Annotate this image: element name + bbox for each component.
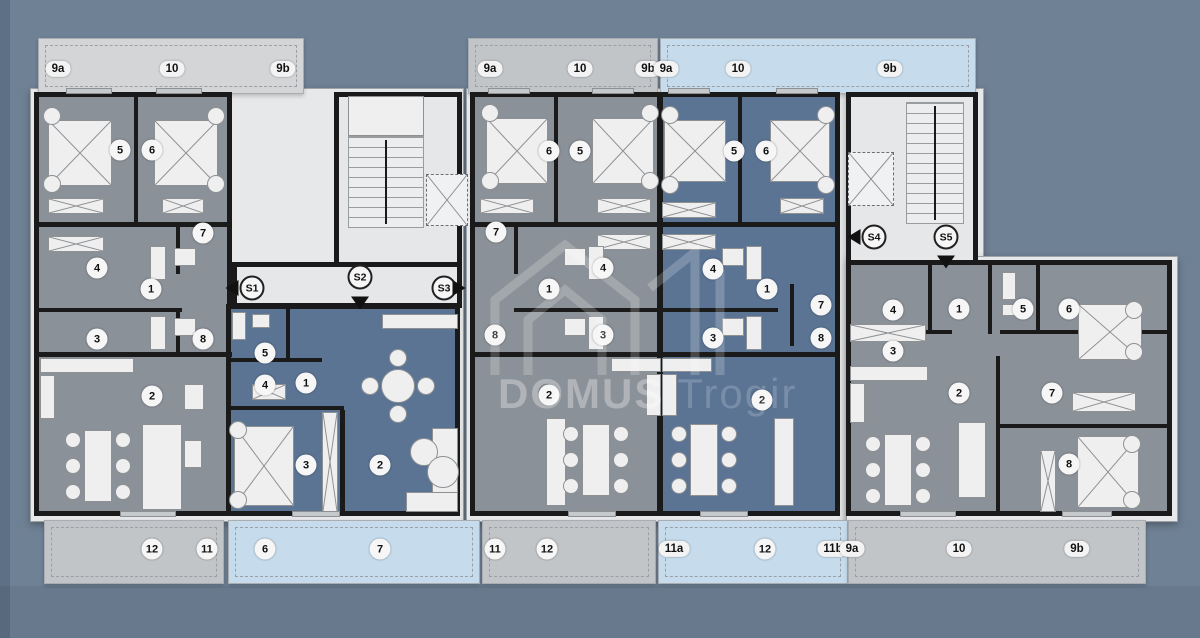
chair-icon xyxy=(915,436,931,452)
furniture xyxy=(958,422,986,498)
nightstand-icon xyxy=(1125,343,1143,361)
room-label: 7 xyxy=(193,223,214,244)
room-label: 2 xyxy=(539,385,560,406)
room-label: 8 xyxy=(193,329,214,350)
balcony-label: 9a xyxy=(478,61,503,77)
wall xyxy=(34,308,182,312)
wall xyxy=(928,264,932,330)
balcony-label: 10 xyxy=(568,61,593,77)
room-label: 1 xyxy=(757,279,778,300)
chair-icon xyxy=(563,426,579,442)
bed-icon xyxy=(770,120,830,182)
wall xyxy=(340,410,345,516)
furniture xyxy=(184,384,204,410)
nightstand-icon xyxy=(817,176,835,194)
window xyxy=(488,88,530,94)
furniture xyxy=(746,246,762,280)
chair-icon xyxy=(389,349,407,367)
wall xyxy=(470,352,662,357)
balcony-label: 10 xyxy=(726,61,751,77)
room-label: 5 xyxy=(255,343,276,364)
nightstand-icon xyxy=(481,104,499,122)
furniture xyxy=(232,312,246,340)
nightstand-icon xyxy=(481,172,499,190)
furniture xyxy=(406,492,458,512)
chair-icon xyxy=(915,488,931,504)
chair-icon xyxy=(721,478,737,494)
chair-icon xyxy=(115,458,131,474)
balcony-label: 9a xyxy=(840,541,865,557)
window xyxy=(120,511,176,517)
wall xyxy=(996,356,1000,516)
wardrobe-icon xyxy=(1072,392,1136,412)
table-icon xyxy=(884,434,912,506)
wardrobe-icon xyxy=(48,198,104,214)
chair-icon xyxy=(613,478,629,494)
background-bottom-shade xyxy=(0,586,1200,638)
furniture xyxy=(40,358,134,373)
balcony-label: 9b xyxy=(877,61,902,77)
window xyxy=(700,511,748,517)
wardrobe-icon xyxy=(480,198,534,214)
room-label: 7 xyxy=(486,222,507,243)
furniture xyxy=(252,314,270,328)
chair-icon xyxy=(721,452,737,468)
stair-label: S5 xyxy=(934,225,959,250)
room-label: 3 xyxy=(883,341,904,362)
room-label: 5 xyxy=(724,141,745,162)
wall xyxy=(658,222,840,227)
balcony-top-right xyxy=(660,38,976,94)
nightstand-icon xyxy=(1123,435,1141,453)
chair-icon xyxy=(115,432,131,448)
balcony-label: 11 xyxy=(485,539,506,560)
chair-icon xyxy=(563,452,579,468)
chair-icon xyxy=(721,426,737,442)
room-label: 5 xyxy=(110,140,131,161)
arrow-left-icon xyxy=(848,229,861,245)
nightstand-icon xyxy=(641,104,659,122)
elevator-icon xyxy=(848,152,894,206)
chair-icon xyxy=(915,462,931,478)
room-label: 8 xyxy=(485,325,506,346)
floor-plan: DOMUS Trogir 9a109b9a109b9a109b11a11b9a1… xyxy=(0,0,1200,638)
balcony-bottom-5 xyxy=(848,520,1146,584)
balcony-label: 12 xyxy=(537,539,558,560)
balcony-label: 9a xyxy=(654,61,679,77)
wall xyxy=(1036,264,1040,334)
wall xyxy=(286,304,290,360)
room-label: 8 xyxy=(811,328,832,349)
bed-icon xyxy=(664,120,726,182)
chair-icon xyxy=(613,452,629,468)
balcony-label: 9b xyxy=(1064,541,1089,557)
furniture xyxy=(564,248,586,266)
window xyxy=(568,511,616,517)
balcony-label: 10 xyxy=(160,61,185,77)
stair-divider xyxy=(385,140,387,224)
balcony-label: 9a xyxy=(46,61,71,77)
balcony-label: 12 xyxy=(755,539,776,560)
room-label: 1 xyxy=(949,299,970,320)
chair-icon xyxy=(613,426,629,442)
bed-icon xyxy=(154,120,218,186)
chair-icon xyxy=(115,484,131,500)
wall xyxy=(514,308,662,312)
nightstand-icon xyxy=(43,175,61,193)
furniture xyxy=(564,318,586,336)
furniture xyxy=(662,374,677,416)
nightstand-icon xyxy=(229,421,247,439)
nightstand-icon xyxy=(1123,491,1141,509)
chair-icon xyxy=(389,405,407,423)
furniture xyxy=(722,318,744,336)
chair-icon xyxy=(417,377,435,395)
chair-icon xyxy=(65,458,81,474)
furniture xyxy=(1002,272,1016,300)
furniture xyxy=(662,358,712,372)
wardrobe-icon xyxy=(322,412,338,512)
nightstand-icon xyxy=(229,491,247,509)
balcony-label: 12 xyxy=(142,539,163,560)
room-label: 2 xyxy=(142,386,163,407)
wardrobe-icon xyxy=(162,198,204,214)
nightstand-icon xyxy=(43,107,61,125)
balcony-label: 6 xyxy=(255,539,276,560)
nightstand-icon xyxy=(641,172,659,190)
wardrobe-icon xyxy=(1040,450,1056,512)
chair-icon xyxy=(65,484,81,500)
window xyxy=(900,511,956,517)
stair-label: S2 xyxy=(348,265,373,290)
wall xyxy=(790,284,794,346)
room-label: 4 xyxy=(883,300,904,321)
room-label: 2 xyxy=(949,383,970,404)
window xyxy=(156,88,202,94)
balcony-bottom-3 xyxy=(482,520,656,584)
room-label: 7 xyxy=(811,295,832,316)
room-label: 1 xyxy=(296,373,317,394)
wall xyxy=(514,222,518,274)
arrow-down-icon xyxy=(351,297,369,310)
wall xyxy=(226,358,322,362)
furniture xyxy=(150,246,166,280)
wall xyxy=(226,406,344,410)
room-label: 2 xyxy=(752,390,773,411)
room-label: 3 xyxy=(87,329,108,350)
room-label: 4 xyxy=(593,258,614,279)
furniture xyxy=(774,418,794,506)
nightstand-icon xyxy=(207,175,225,193)
furniture xyxy=(850,383,865,423)
room-label: 3 xyxy=(296,455,317,476)
chair-icon xyxy=(865,488,881,504)
wardrobe-icon xyxy=(780,198,824,214)
arrow-right-icon xyxy=(453,280,466,296)
room-label: 7 xyxy=(1042,383,1063,404)
room-label: 5 xyxy=(1013,299,1034,320)
pouf-icon xyxy=(427,456,459,488)
nightstand-icon xyxy=(661,176,679,194)
elevator-icon xyxy=(426,174,468,226)
window xyxy=(668,88,710,94)
table-icon xyxy=(84,430,112,502)
background-edge-shade xyxy=(0,0,10,638)
wall xyxy=(1000,424,1172,428)
chair-icon xyxy=(865,436,881,452)
furniture xyxy=(850,366,928,381)
wardrobe-icon xyxy=(662,234,716,250)
room-label: 2 xyxy=(370,455,391,476)
furniture xyxy=(174,248,196,266)
room-label: 6 xyxy=(539,141,560,162)
room-label: 3 xyxy=(593,325,614,346)
wall xyxy=(658,308,778,312)
furniture xyxy=(646,374,661,416)
chair-icon xyxy=(671,478,687,494)
wall xyxy=(658,352,840,357)
window xyxy=(776,88,818,94)
wardrobe-icon xyxy=(597,198,651,214)
table-icon xyxy=(582,424,610,496)
window xyxy=(66,88,112,94)
furniture xyxy=(722,248,744,266)
furniture xyxy=(746,316,762,350)
arrow-left-icon xyxy=(226,280,239,296)
window xyxy=(1062,511,1112,517)
wall xyxy=(134,92,138,226)
stair-divider xyxy=(934,106,936,220)
wardrobe-icon xyxy=(48,236,104,252)
wall xyxy=(34,352,232,357)
furniture xyxy=(40,375,55,419)
arrow-down-icon xyxy=(937,256,955,269)
chair-icon xyxy=(361,377,379,395)
room-label: 1 xyxy=(141,279,162,300)
furniture xyxy=(611,358,661,372)
furniture xyxy=(184,440,202,468)
room-label: 4 xyxy=(255,375,276,396)
furniture xyxy=(382,314,458,329)
room-label: 5 xyxy=(570,141,591,162)
stair-label: S1 xyxy=(240,276,265,301)
wardrobe-icon xyxy=(597,234,651,250)
balcony-label: 11a xyxy=(659,541,690,557)
room-label: 6 xyxy=(142,140,163,161)
chair-icon xyxy=(65,432,81,448)
furniture xyxy=(150,316,166,350)
chair-icon xyxy=(671,426,687,442)
balcony-label: 9b xyxy=(270,61,295,77)
nightstand-icon xyxy=(207,107,225,125)
room-label: 4 xyxy=(87,258,108,279)
room-label: 6 xyxy=(1059,299,1080,320)
corridor-left xyxy=(232,262,462,308)
table-icon xyxy=(690,424,718,496)
chair-icon xyxy=(671,452,687,468)
stair-landing xyxy=(348,96,424,136)
balcony-label: 10 xyxy=(947,541,972,557)
room-label: 1 xyxy=(539,279,560,300)
window xyxy=(592,88,634,94)
stair-label: S4 xyxy=(862,225,887,250)
chair-icon xyxy=(563,478,579,494)
wardrobe-icon xyxy=(850,324,926,342)
wall xyxy=(988,264,992,334)
room-label: 6 xyxy=(756,141,777,162)
table-icon xyxy=(381,369,415,403)
nightstand-icon xyxy=(661,106,679,124)
chair-icon xyxy=(865,462,881,478)
wardrobe-icon xyxy=(662,202,716,218)
nightstand-icon xyxy=(1125,301,1143,319)
furniture xyxy=(142,424,182,510)
room-label: 3 xyxy=(703,328,724,349)
balcony-label: 7 xyxy=(370,539,391,560)
room-label: 4 xyxy=(703,259,724,280)
balcony-label: 11 xyxy=(197,539,218,560)
nightstand-icon xyxy=(817,106,835,124)
room-label: 8 xyxy=(1059,454,1080,475)
